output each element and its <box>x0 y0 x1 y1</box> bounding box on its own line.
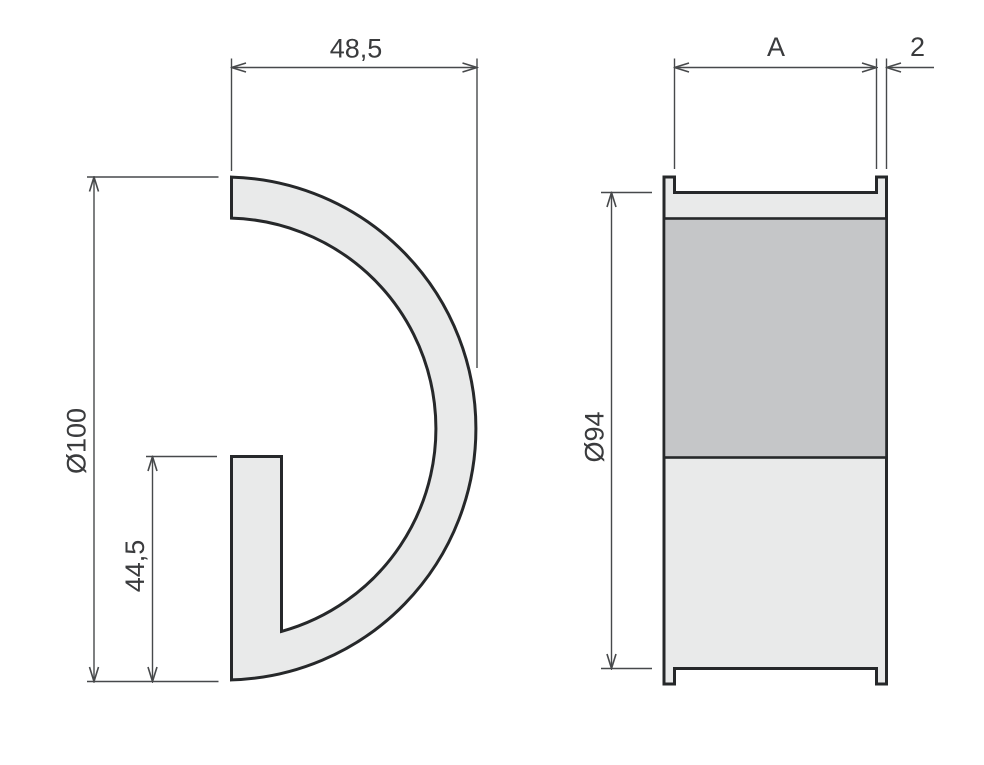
left-view-c-clip: 48,5 Ø100 44,5 <box>62 34 478 682</box>
technical-drawing-canvas: 48,5 Ø100 44,5 <box>0 0 984 765</box>
dimension-flange-width: 2 <box>887 32 935 169</box>
dimension-label: 44,5 <box>120 540 150 593</box>
drawing-page: 48,5 Ø100 44,5 <box>0 0 984 765</box>
dimension-barrel-diameter: Ø94 <box>580 193 653 669</box>
dimension-outer-diameter: Ø100 <box>62 177 219 682</box>
dimension-label: Ø100 <box>62 408 92 474</box>
dimension-label: Ø94 <box>580 411 610 462</box>
right-view-roller: A 2 Ø94 <box>580 32 935 684</box>
c-clip-profile <box>232 177 476 680</box>
dimension-label: 48,5 <box>330 34 383 64</box>
dimension-label: A <box>767 32 785 62</box>
roller-shaded-band <box>664 219 887 458</box>
dimension-label: 2 <box>910 32 925 62</box>
dimension-barrel-length: A <box>675 32 877 169</box>
dimension-opening-height: 44,5 <box>120 457 217 682</box>
